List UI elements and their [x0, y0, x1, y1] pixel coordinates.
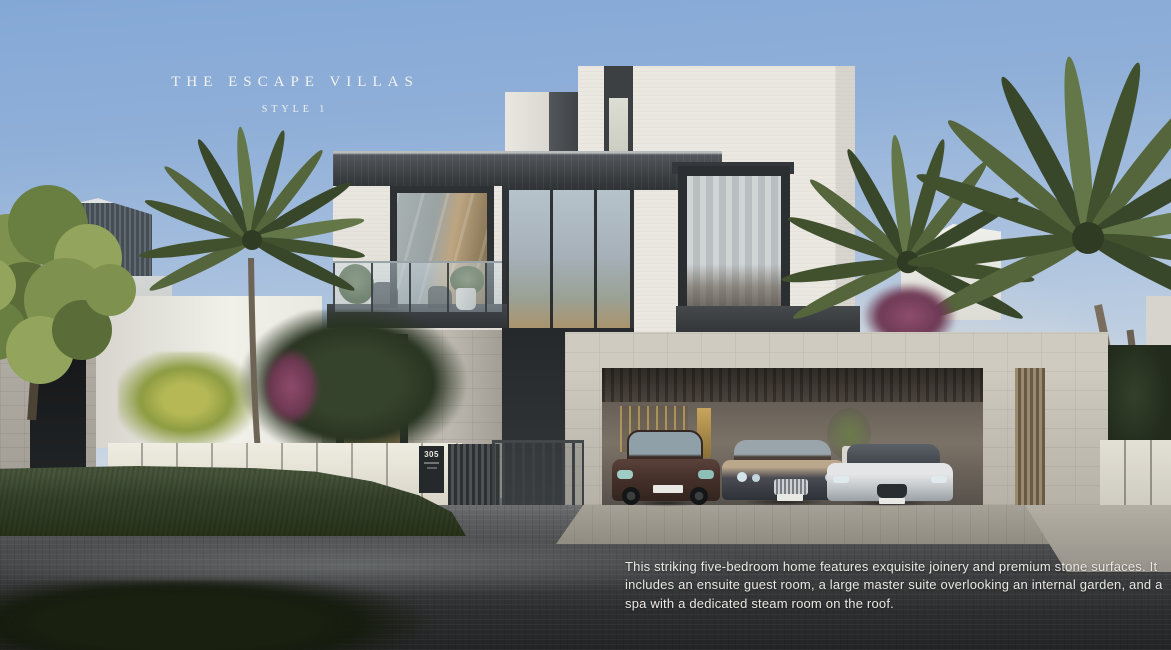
headlight: [617, 470, 633, 479]
plaque-text-line: [424, 462, 439, 464]
headlight: [833, 476, 849, 483]
front-grille: [877, 484, 907, 498]
plaque-text-line: [427, 467, 437, 469]
license-plate: [879, 498, 905, 504]
headlight: [698, 470, 714, 479]
villa-roof-band: [333, 151, 722, 190]
right-fence-wall: [1100, 440, 1171, 505]
bougainvillea-left: [262, 348, 320, 426]
chrome-grille: [774, 479, 808, 495]
page-title: THE ESCAPE VILLAS: [168, 74, 422, 91]
brand-block: THE ESCAPE VILLAS STYLE 1: [168, 74, 422, 115]
plaque-number: 305: [424, 451, 439, 459]
louver-screen: [1015, 368, 1045, 505]
bedroom-window-right-glass: [687, 176, 781, 318]
address-plaque: 305: [419, 446, 444, 493]
headlight: [737, 472, 747, 482]
description-text: This striking five-bedroom home features…: [625, 558, 1167, 613]
car-white-sports: [827, 444, 953, 505]
foreground-shrub: [0, 580, 450, 650]
garage-ceiling: [602, 368, 983, 402]
garage-roof-fascia: [676, 306, 860, 332]
villa-marketing-render: 305 THE ESCAPE VILLAS STYLE 1 This strik…: [0, 0, 1171, 650]
wheel: [690, 487, 708, 505]
license-plate: [653, 485, 683, 493]
page-subtitle: STYLE 1: [168, 104, 422, 115]
entry-gate: [492, 440, 584, 505]
car-maroon-coupe: [612, 430, 720, 505]
headlight: [752, 474, 760, 482]
license-plate: [777, 494, 803, 501]
wheel: [622, 487, 640, 505]
balcony-glass-railing: [333, 261, 502, 312]
headlight: [931, 476, 947, 483]
garden-doorway: [30, 338, 86, 478]
